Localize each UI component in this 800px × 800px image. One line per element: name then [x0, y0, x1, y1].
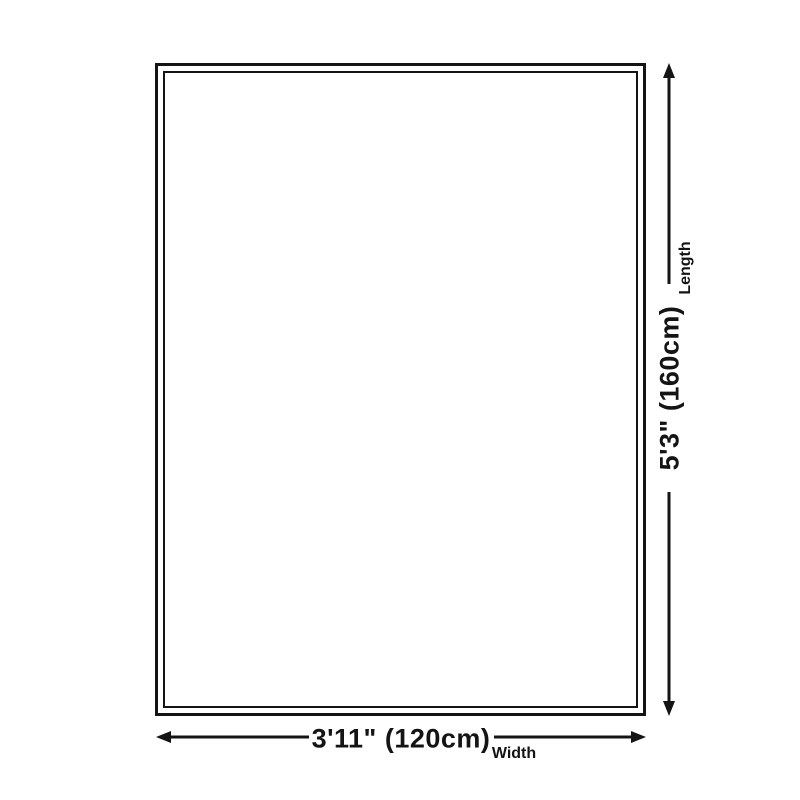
width-label: Width — [492, 745, 536, 763]
arrow-right-icon — [631, 731, 646, 743]
length-label: Length — [677, 241, 695, 294]
length-value: 5'3" (160cm) — [655, 306, 686, 471]
width-value: 3'11" (120cm) — [312, 724, 491, 755]
arrow-up-icon — [663, 63, 675, 78]
arrow-down-icon — [663, 701, 675, 716]
arrow-left-icon — [156, 731, 171, 743]
dimension-diagram: Length 5'3" (160cm) 3'11" (120cm) Width — [0, 0, 800, 800]
